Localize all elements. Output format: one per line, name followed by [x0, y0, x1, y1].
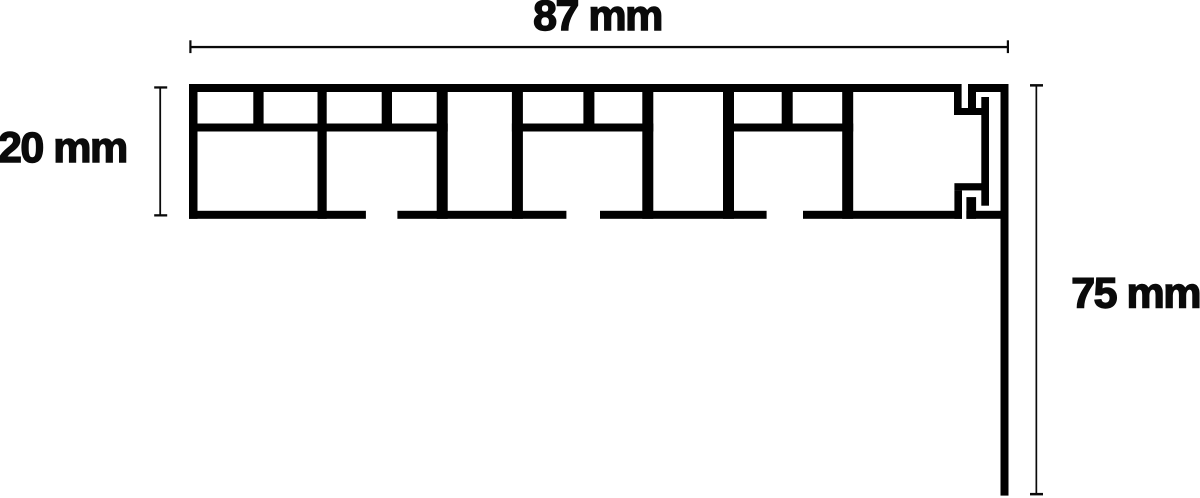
svg-text:75 mm: 75 mm	[1071, 269, 1200, 317]
svg-text:87 mm: 87 mm	[533, 0, 662, 40]
svg-text:20 mm: 20 mm	[0, 124, 127, 172]
